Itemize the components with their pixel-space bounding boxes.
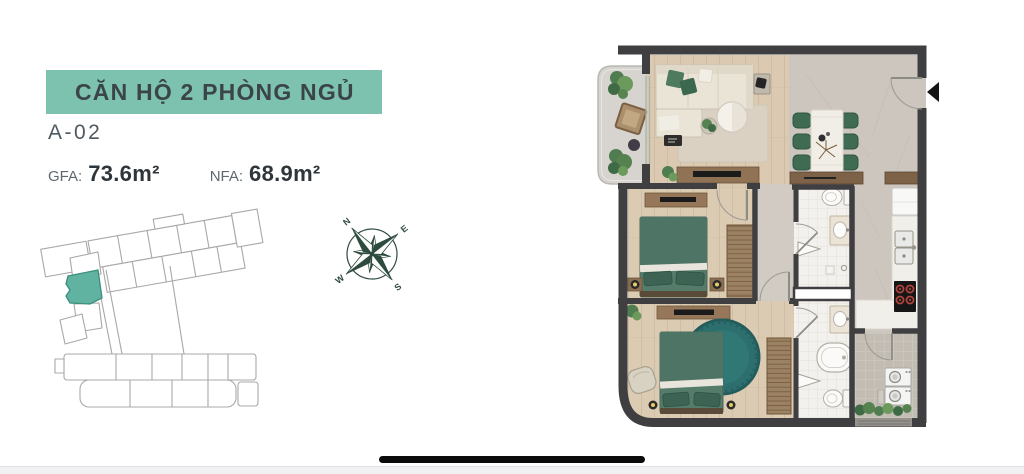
- tray-table: [664, 135, 682, 146]
- compass-label-e: E: [399, 223, 410, 235]
- apartment-type-title: CĂN HỘ 2 PHÒNG NGỦ: [75, 79, 355, 105]
- compass-group: N E S W: [330, 206, 414, 302]
- compass-rose-icon: N E S W: [330, 206, 414, 302]
- unit-code: A-02: [48, 121, 102, 145]
- sideboards: [790, 172, 920, 184]
- nfa-value: 68.9m²: [249, 161, 321, 187]
- service-shaft: [794, 288, 852, 300]
- wardrobe-2: [767, 338, 791, 414]
- entrance-arrow-icon: [927, 82, 939, 102]
- keyplan-outline: [39, 206, 265, 407]
- gfa-stat: GFA: 73.6m²: [48, 161, 160, 187]
- work-desk: [754, 74, 770, 94]
- home-indicator-bar[interactable]: [379, 456, 645, 463]
- gfa-label: GFA:: [48, 168, 82, 185]
- compass-label-n: N: [341, 216, 352, 228]
- gfa-value: 73.6m²: [88, 161, 160, 187]
- bed-1: [640, 217, 707, 297]
- nfa-stat: NFA: 68.9m²: [210, 161, 321, 187]
- bed-2: [660, 332, 723, 414]
- area-stats: GFA: 73.6m² NFA: 68.9m²: [48, 161, 321, 187]
- vanity-2: [830, 306, 851, 333]
- plant-side-table: [701, 118, 717, 134]
- wall-stub-bottom: [642, 164, 650, 188]
- keyplan-podium-lower: [80, 380, 236, 407]
- nfa-label: NFA:: [210, 168, 243, 185]
- bathtub: [817, 343, 852, 372]
- toilet-1: [822, 188, 852, 206]
- keyplan-highlighted-unit: [66, 270, 102, 304]
- dining-table: [811, 110, 843, 172]
- kitchen-sink: [895, 231, 916, 264]
- dresser-1: [645, 193, 707, 207]
- keyplan-podium-upper: [64, 354, 256, 380]
- tv-console-2: [657, 306, 730, 319]
- balcony-cushion: [628, 139, 640, 151]
- louver-vent: [855, 418, 912, 427]
- toilet-2: [824, 390, 852, 407]
- cooktop: [894, 281, 916, 312]
- apartment-type-badge: CĂN HỘ 2 PHÒNG NGỦ: [46, 70, 382, 114]
- compass-label-w: W: [333, 272, 346, 285]
- wall-stub-top: [642, 54, 650, 74]
- vanity-1: [830, 216, 851, 245]
- fridge: [892, 188, 918, 215]
- building-key-plan: [30, 206, 265, 418]
- utility-shelf: [878, 390, 884, 404]
- floor-plan: [590, 38, 1010, 440]
- compass-label-s: S: [392, 281, 403, 293]
- tv-console-living: [677, 167, 759, 183]
- wardrobe-1: [727, 225, 753, 297]
- shower-drain-1: [826, 266, 834, 274]
- washer-stack: [885, 368, 911, 405]
